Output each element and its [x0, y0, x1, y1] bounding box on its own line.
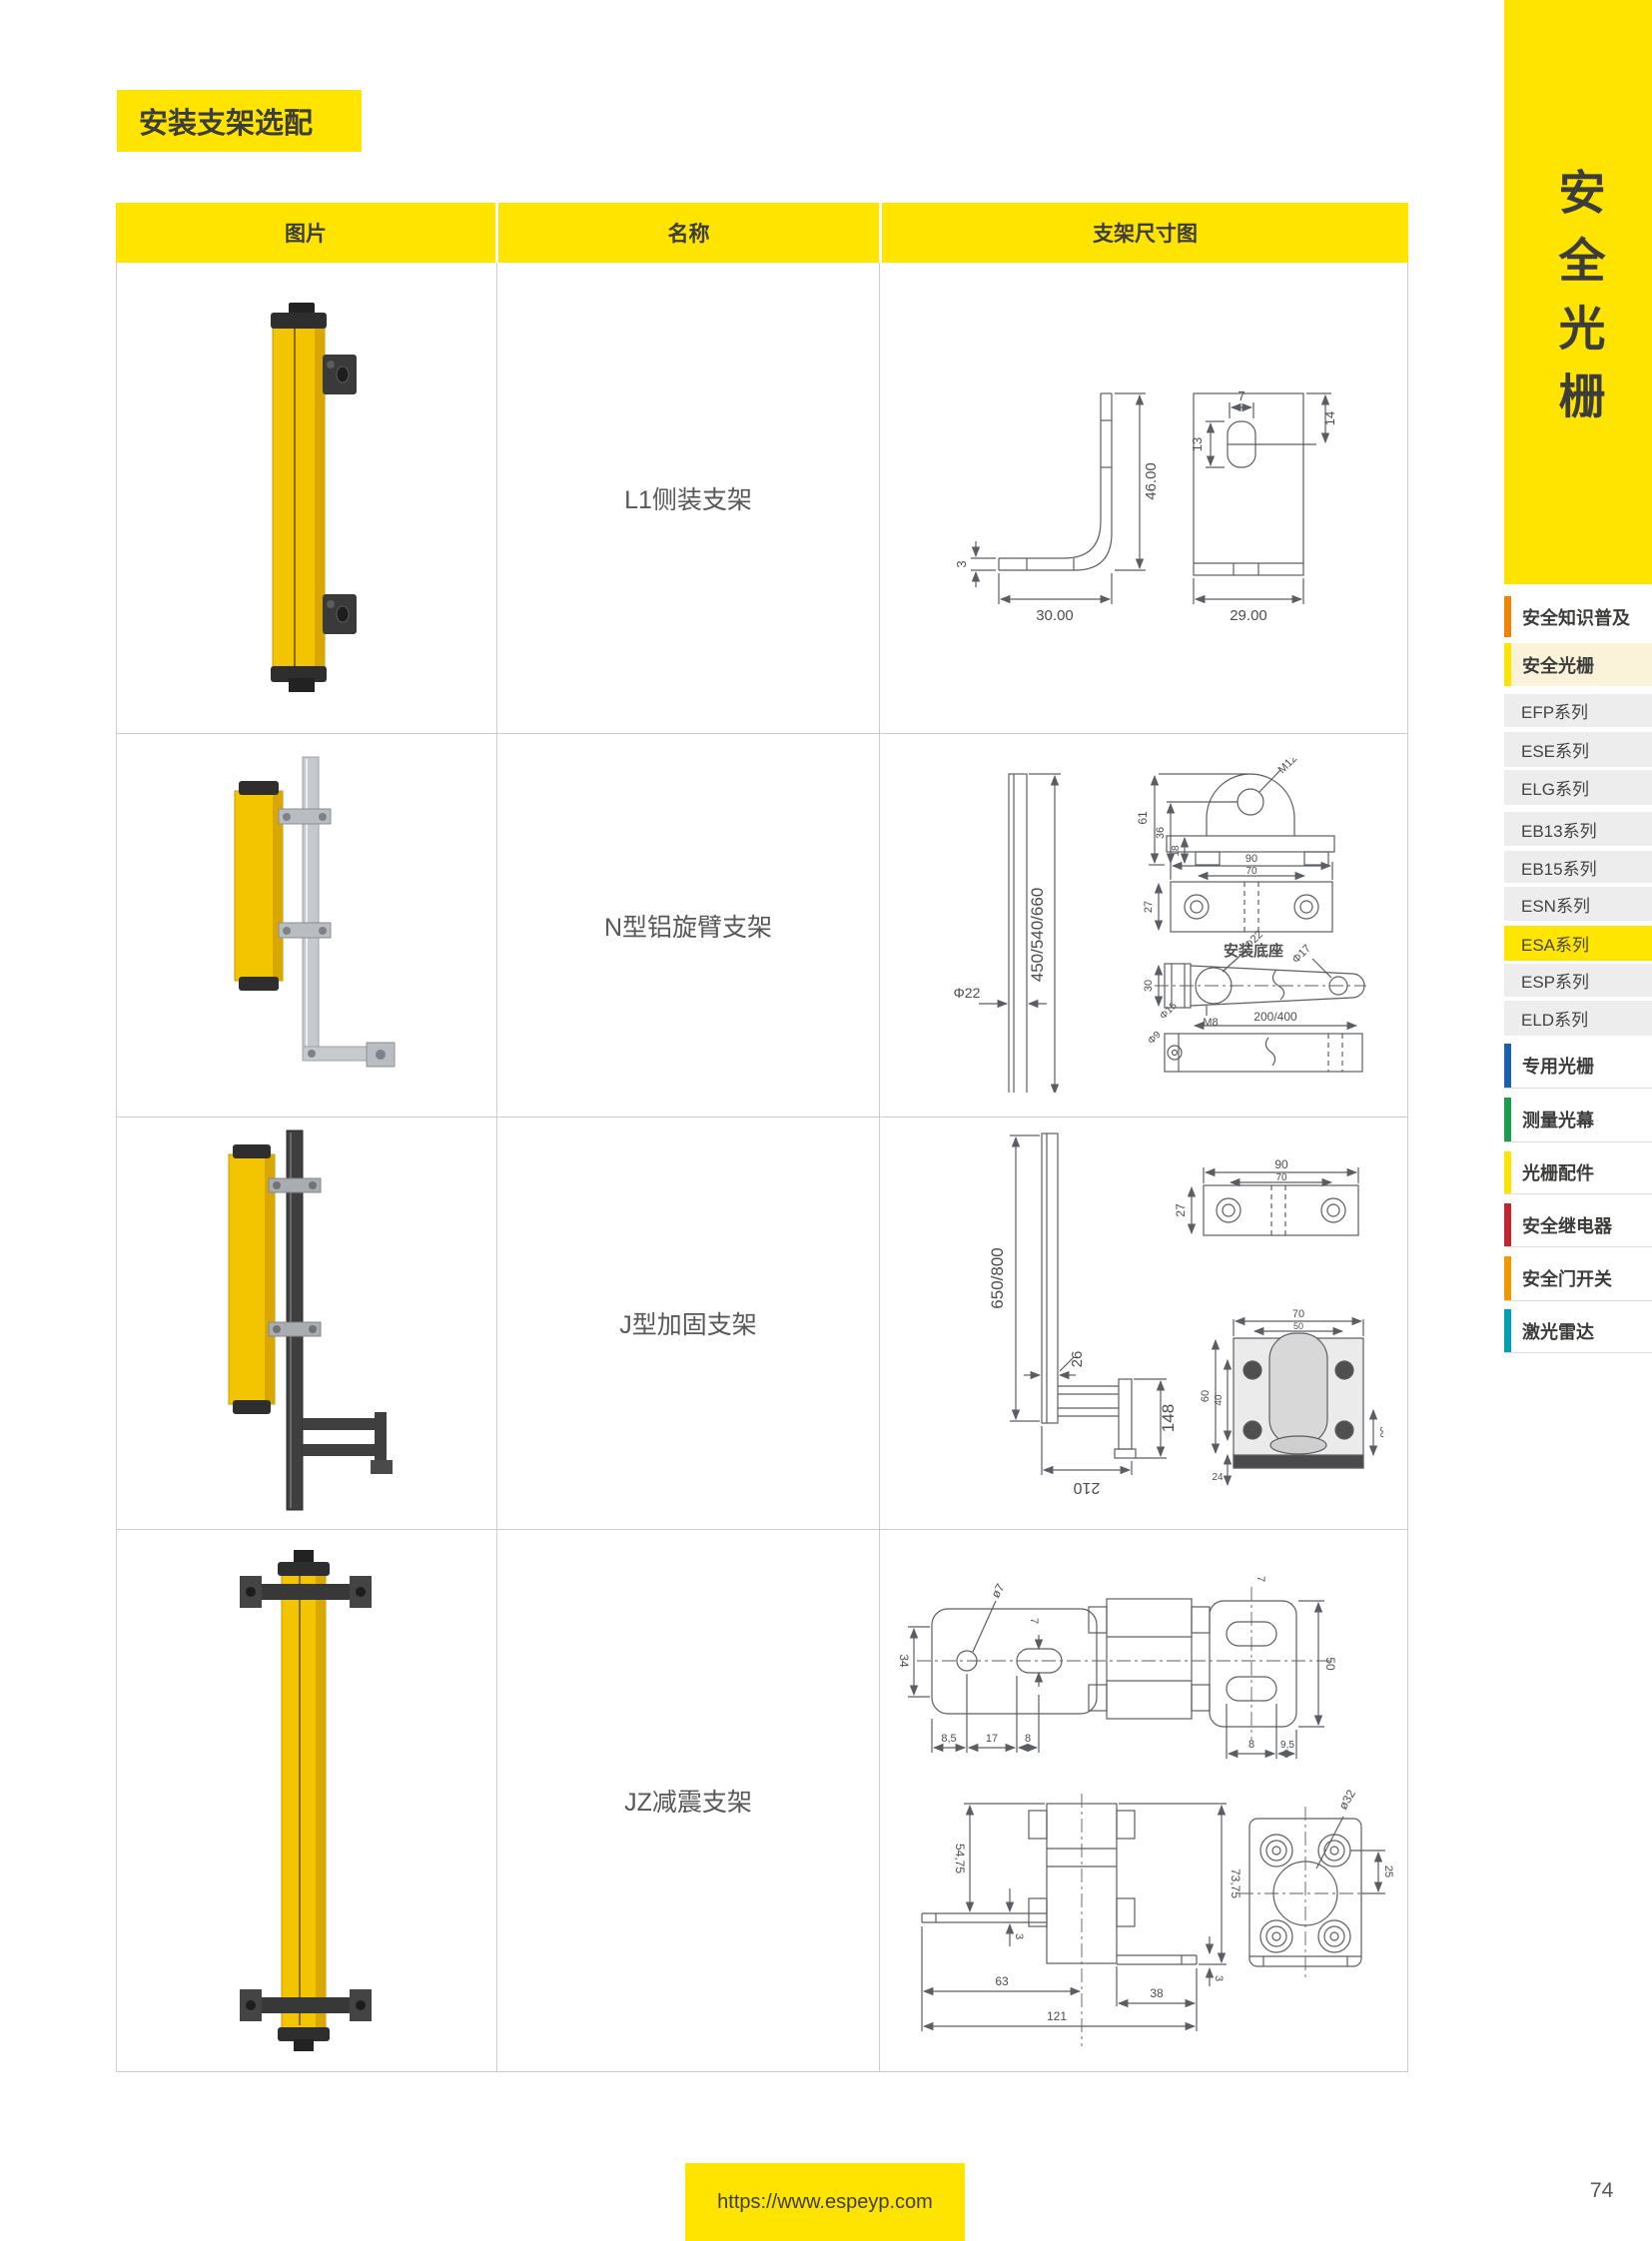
dim-label: Φ17 — [1290, 943, 1313, 966]
n-type-bracket-drawing: 450/540/660 Φ22 M12 61 36 18 90 70 27 安装… — [909, 758, 1378, 1093]
dim-label: 7 — [1238, 388, 1244, 403]
dim-label: 61 — [1136, 811, 1150, 825]
j-type-bracket-drawing: 650/800 26 148 210 90 70 27 70 50 60 40 … — [904, 1123, 1383, 1523]
footer-url[interactable]: https://www.espeyp.com — [717, 2191, 933, 2214]
sidebar-item-laser-radar[interactable]: 激光雷达 — [1504, 1309, 1652, 1353]
dim-label: 73,75 — [1229, 1867, 1242, 1897]
dim-label: 70 — [1275, 1172, 1287, 1183]
name-cell: L1侧装支架 — [497, 263, 880, 733]
dim-label: Φ15 — [1158, 1001, 1180, 1023]
dim-label: 27 — [1143, 901, 1155, 913]
sidebar-item-safety-door-switch[interactable]: 安全门开关 — [1504, 1256, 1652, 1301]
dim-label: 650/800 — [988, 1247, 1007, 1308]
col-header-name: 名称 — [498, 203, 879, 263]
sidebar-item-esn-series[interactable]: ESN系列 — [1504, 887, 1652, 921]
dim-label: 25 — [1382, 1865, 1394, 1876]
bracket-name: J型加固支架 — [619, 1305, 757, 1341]
dim-label: 8 — [1024, 1733, 1030, 1745]
bracket-name: JZ减震支架 — [624, 1783, 752, 1819]
table-row: JZ减震支架 — [117, 1530, 1407, 2071]
product-photo-cell — [117, 734, 497, 1117]
light-curtain-side-bracket-photo — [237, 303, 377, 694]
sidebar-item-elg-series[interactable]: ELG系列 — [1504, 770, 1652, 805]
sidebar-item-safety-light-curtain[interactable]: 安全光栅 — [1504, 643, 1652, 686]
sidebar-item-safety-knowledge[interactable]: 安全知识普及 — [1504, 596, 1652, 637]
dim-label: 60 — [1200, 1390, 1212, 1402]
dim-label: 3 — [1213, 1974, 1225, 1980]
jz-bracket-drawing: ø7 7 34 8,5 17 8 7 50 8 9,5 54,75 3 63 1… — [892, 1549, 1396, 2053]
dim-label: 54,75 — [953, 1843, 967, 1872]
dim-label: 7 — [1028, 1617, 1040, 1623]
page-number: 74 — [1590, 2179, 1613, 2203]
sidebar-item-label: ESP系列 — [1521, 968, 1589, 993]
dim-label: 70 — [1292, 1308, 1304, 1320]
sidebar-item-label: 测量光幕 — [1511, 1107, 1594, 1132]
mounting-bracket — [323, 355, 357, 394]
sidebar-item-special-light-curtain[interactable]: 专用光栅 — [1504, 1044, 1652, 1089]
mounting-bracket — [323, 594, 357, 634]
sidebar-item-efp-series[interactable]: EFP系列 — [1504, 694, 1652, 727]
table-row: J型加固支架 — [117, 1118, 1407, 1530]
sidebar-item-eb13-series[interactable]: EB13系列 — [1504, 812, 1652, 846]
sidebar-item-ese-series[interactable]: ESE系列 — [1504, 732, 1652, 767]
dim-label: M8 — [1203, 1017, 1218, 1029]
section-color-bar — [1504, 643, 1511, 686]
table-row: L1侧装支架 — [117, 263, 1407, 734]
page-title: 安装支架选配 — [117, 90, 362, 152]
sidebar-item-label: 激光雷达 — [1511, 1318, 1594, 1344]
sidebar-item-label: ELG系列 — [1521, 775, 1589, 800]
dim-label: M12 — [1276, 758, 1300, 776]
sidebar-item-safety-relay[interactable]: 安全继电器 — [1504, 1203, 1652, 1247]
dim-label: 26 — [1069, 1351, 1086, 1368]
drawing-cell: 46.00 30.00 3 7 13 14 29.00 — [880, 263, 1407, 733]
sidebar-item-measuring-light-curtain[interactable]: 测量光幕 — [1504, 1098, 1652, 1142]
section-color-bar — [1504, 1098, 1511, 1141]
sidebar-item-label: ELD系列 — [1521, 1006, 1588, 1031]
dim-label: 40 — [1214, 1394, 1225, 1406]
name-cell: JZ减震支架 — [497, 1530, 880, 2071]
sidebar-item-label: ESA系列 — [1521, 931, 1589, 956]
sidebar-category-banner: 安全光栅 — [1504, 0, 1652, 584]
sidebar-item-label: 光栅配件 — [1511, 1159, 1594, 1185]
dim-label: 50 — [1293, 1321, 1303, 1331]
dim-label: 63 — [995, 1974, 1009, 1988]
name-cell: N型铝旋臂支架 — [497, 734, 880, 1117]
light-curtain-j-bracket-photo — [217, 1126, 397, 1521]
dim-label: 70 — [1245, 866, 1257, 877]
dim-label: 14 — [1322, 410, 1337, 424]
table-body: L1侧装支架 — [116, 263, 1408, 2072]
dim-label: 30 — [1377, 1426, 1383, 1438]
sidebar-item-esa-series-active[interactable]: ESA系列 — [1504, 926, 1652, 961]
col-header-dimension-drawing: 支架尺寸图 — [882, 203, 1408, 263]
bracket-name: N型铝旋臂支架 — [604, 908, 772, 944]
drawing-cell: 650/800 26 148 210 90 70 27 70 50 60 40 … — [880, 1118, 1407, 1529]
dim-label: 7 — [1254, 1575, 1266, 1581]
section-color-bar — [1504, 1309, 1511, 1352]
arm — [303, 1444, 381, 1456]
dim-label: 90 — [1245, 853, 1257, 865]
footer-url-box[interactable]: https://www.espeyp.com — [685, 2163, 965, 2241]
dim-label: 38 — [1150, 1986, 1164, 2000]
connector — [294, 1550, 314, 1564]
product-photo-cell — [117, 1118, 497, 1529]
end-plate — [375, 1412, 387, 1464]
dim-label: 34 — [897, 1654, 911, 1668]
sidebar-item-label: 安全知识普及 — [1511, 604, 1630, 630]
section-color-bar — [1504, 1151, 1511, 1193]
name-cell: J型加固支架 — [497, 1118, 880, 1529]
wall-foot — [371, 1460, 393, 1474]
l1-bracket-drawing: 46.00 30.00 3 7 13 14 29.00 — [949, 364, 1338, 633]
dim-label: 9,5 — [1280, 1740, 1294, 1751]
product-photo-cell — [117, 1530, 497, 2071]
dim-label: 17 — [985, 1733, 997, 1745]
sidebar-item-esp-series[interactable]: ESP系列 — [1504, 964, 1652, 997]
brackets-table: 图片 名称 支架尺寸图 — [116, 203, 1408, 2072]
bracket-name: L1侧装支架 — [624, 480, 752, 516]
dim-label: 148 — [1159, 1404, 1178, 1432]
dim-label: 46.00 — [1143, 462, 1160, 500]
dim-label: 3 — [954, 560, 969, 567]
dim-label: ø7 — [988, 1581, 1007, 1600]
sidebar-item-label: EB15系列 — [1521, 855, 1597, 880]
drawing-cell: 450/540/660 Φ22 M12 61 36 18 90 70 27 安装… — [880, 734, 1407, 1117]
col-header-image: 图片 — [116, 203, 495, 263]
light-curtain-swivel-arm-photo — [217, 751, 397, 1101]
dim-label: Φ9 — [1146, 1029, 1164, 1047]
dim-label: 30 — [1143, 980, 1155, 992]
sidebar-item-label: EFP系列 — [1521, 698, 1588, 723]
dim-label: ø32 — [1335, 1787, 1358, 1812]
drawing-cell: ø7 7 34 8,5 17 8 7 50 8 9,5 54,75 3 63 1… — [880, 1530, 1407, 2071]
dim-label: 13 — [1190, 436, 1205, 450]
sidebar-item-label: 安全门开关 — [1511, 1265, 1612, 1291]
dim-label: 18 — [1171, 845, 1182, 857]
dim-label: 121 — [1046, 2009, 1066, 2023]
dim-label: 29.00 — [1230, 607, 1267, 624]
dim-label: 36 — [1155, 827, 1167, 839]
dim-label: Φ22 — [954, 985, 981, 1001]
table-header: 图片 名称 支架尺寸图 — [116, 203, 1408, 263]
sidebar-item-grating-accessories[interactable]: 光栅配件 — [1504, 1151, 1652, 1194]
light-curtain-shock-bracket-photo — [232, 1546, 382, 2055]
section-color-bar — [1504, 1044, 1511, 1088]
sidebar-item-label: EB13系列 — [1521, 817, 1597, 842]
sidebar-item-label: 专用光栅 — [1511, 1053, 1594, 1079]
sidebar-item-label: 安全继电器 — [1511, 1212, 1612, 1238]
dim-label: 3 — [1013, 1932, 1025, 1938]
dim-label: 8,5 — [941, 1733, 956, 1745]
dim-label: 24 — [1212, 1472, 1224, 1483]
dim-label: 8 — [1247, 1739, 1253, 1751]
dim-label: 30.00 — [1036, 607, 1074, 624]
sidebar-item-label: ESN系列 — [1521, 892, 1590, 917]
dim-label: 90 — [1274, 1157, 1288, 1171]
dim-label: 27 — [1174, 1203, 1188, 1217]
pole — [303, 757, 319, 1057]
dim-label: 210 — [1074, 1479, 1101, 1496]
dim-label: 450/540/660 — [1028, 888, 1047, 983]
sidebar-item-label: 安全光栅 — [1511, 652, 1594, 678]
section-color-bar — [1504, 596, 1511, 637]
product-photo-cell — [117, 263, 497, 733]
section-color-bar — [1504, 1256, 1511, 1300]
table-row: N型铝旋臂支架 — [117, 734, 1407, 1118]
sidebar-item-eb15-series[interactable]: EB15系列 — [1504, 851, 1652, 883]
arm — [303, 1418, 381, 1430]
dim-label: 200/400 — [1253, 1010, 1297, 1024]
sidebar-category-title: 安全光栅 — [1544, 168, 1613, 584]
sidebar-item-label: ESE系列 — [1521, 737, 1589, 762]
dim-label: 50 — [1323, 1657, 1337, 1671]
sidebar-item-eld-series[interactable]: ELD系列 — [1504, 1001, 1652, 1036]
section-color-bar — [1504, 1203, 1511, 1246]
